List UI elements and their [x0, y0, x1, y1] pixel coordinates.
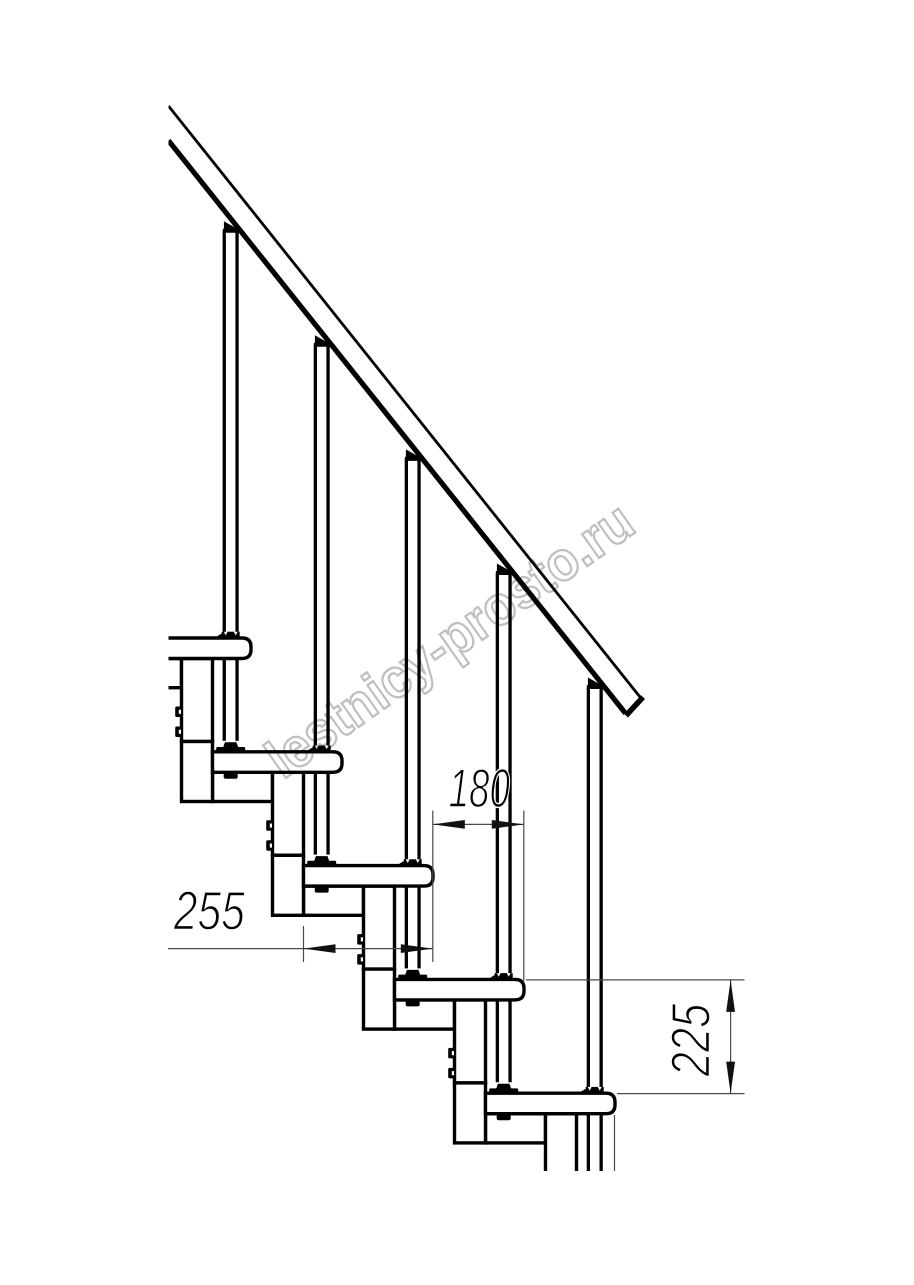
svg-text:255: 255: [173, 880, 245, 942]
svg-text:225: 225: [660, 1003, 722, 1077]
svg-text:180: 180: [449, 757, 511, 819]
